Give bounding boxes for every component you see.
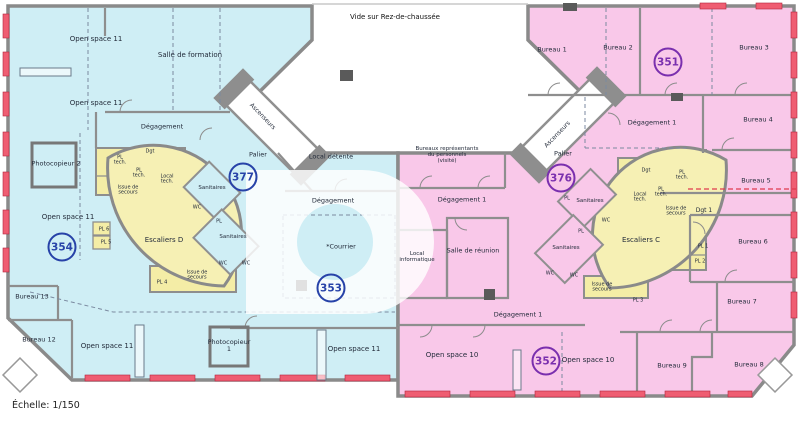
floor-plan: Open space 11Salle de formationOpen spac…	[0, 0, 800, 423]
scale-label: Échelle: 1/150	[12, 400, 80, 411]
riser-block	[484, 289, 495, 300]
floor-plan-drawing	[0, 0, 800, 423]
riser-block	[296, 280, 307, 291]
riser-block	[563, 3, 577, 11]
riser-block	[340, 70, 353, 81]
riser-block	[671, 93, 683, 101]
